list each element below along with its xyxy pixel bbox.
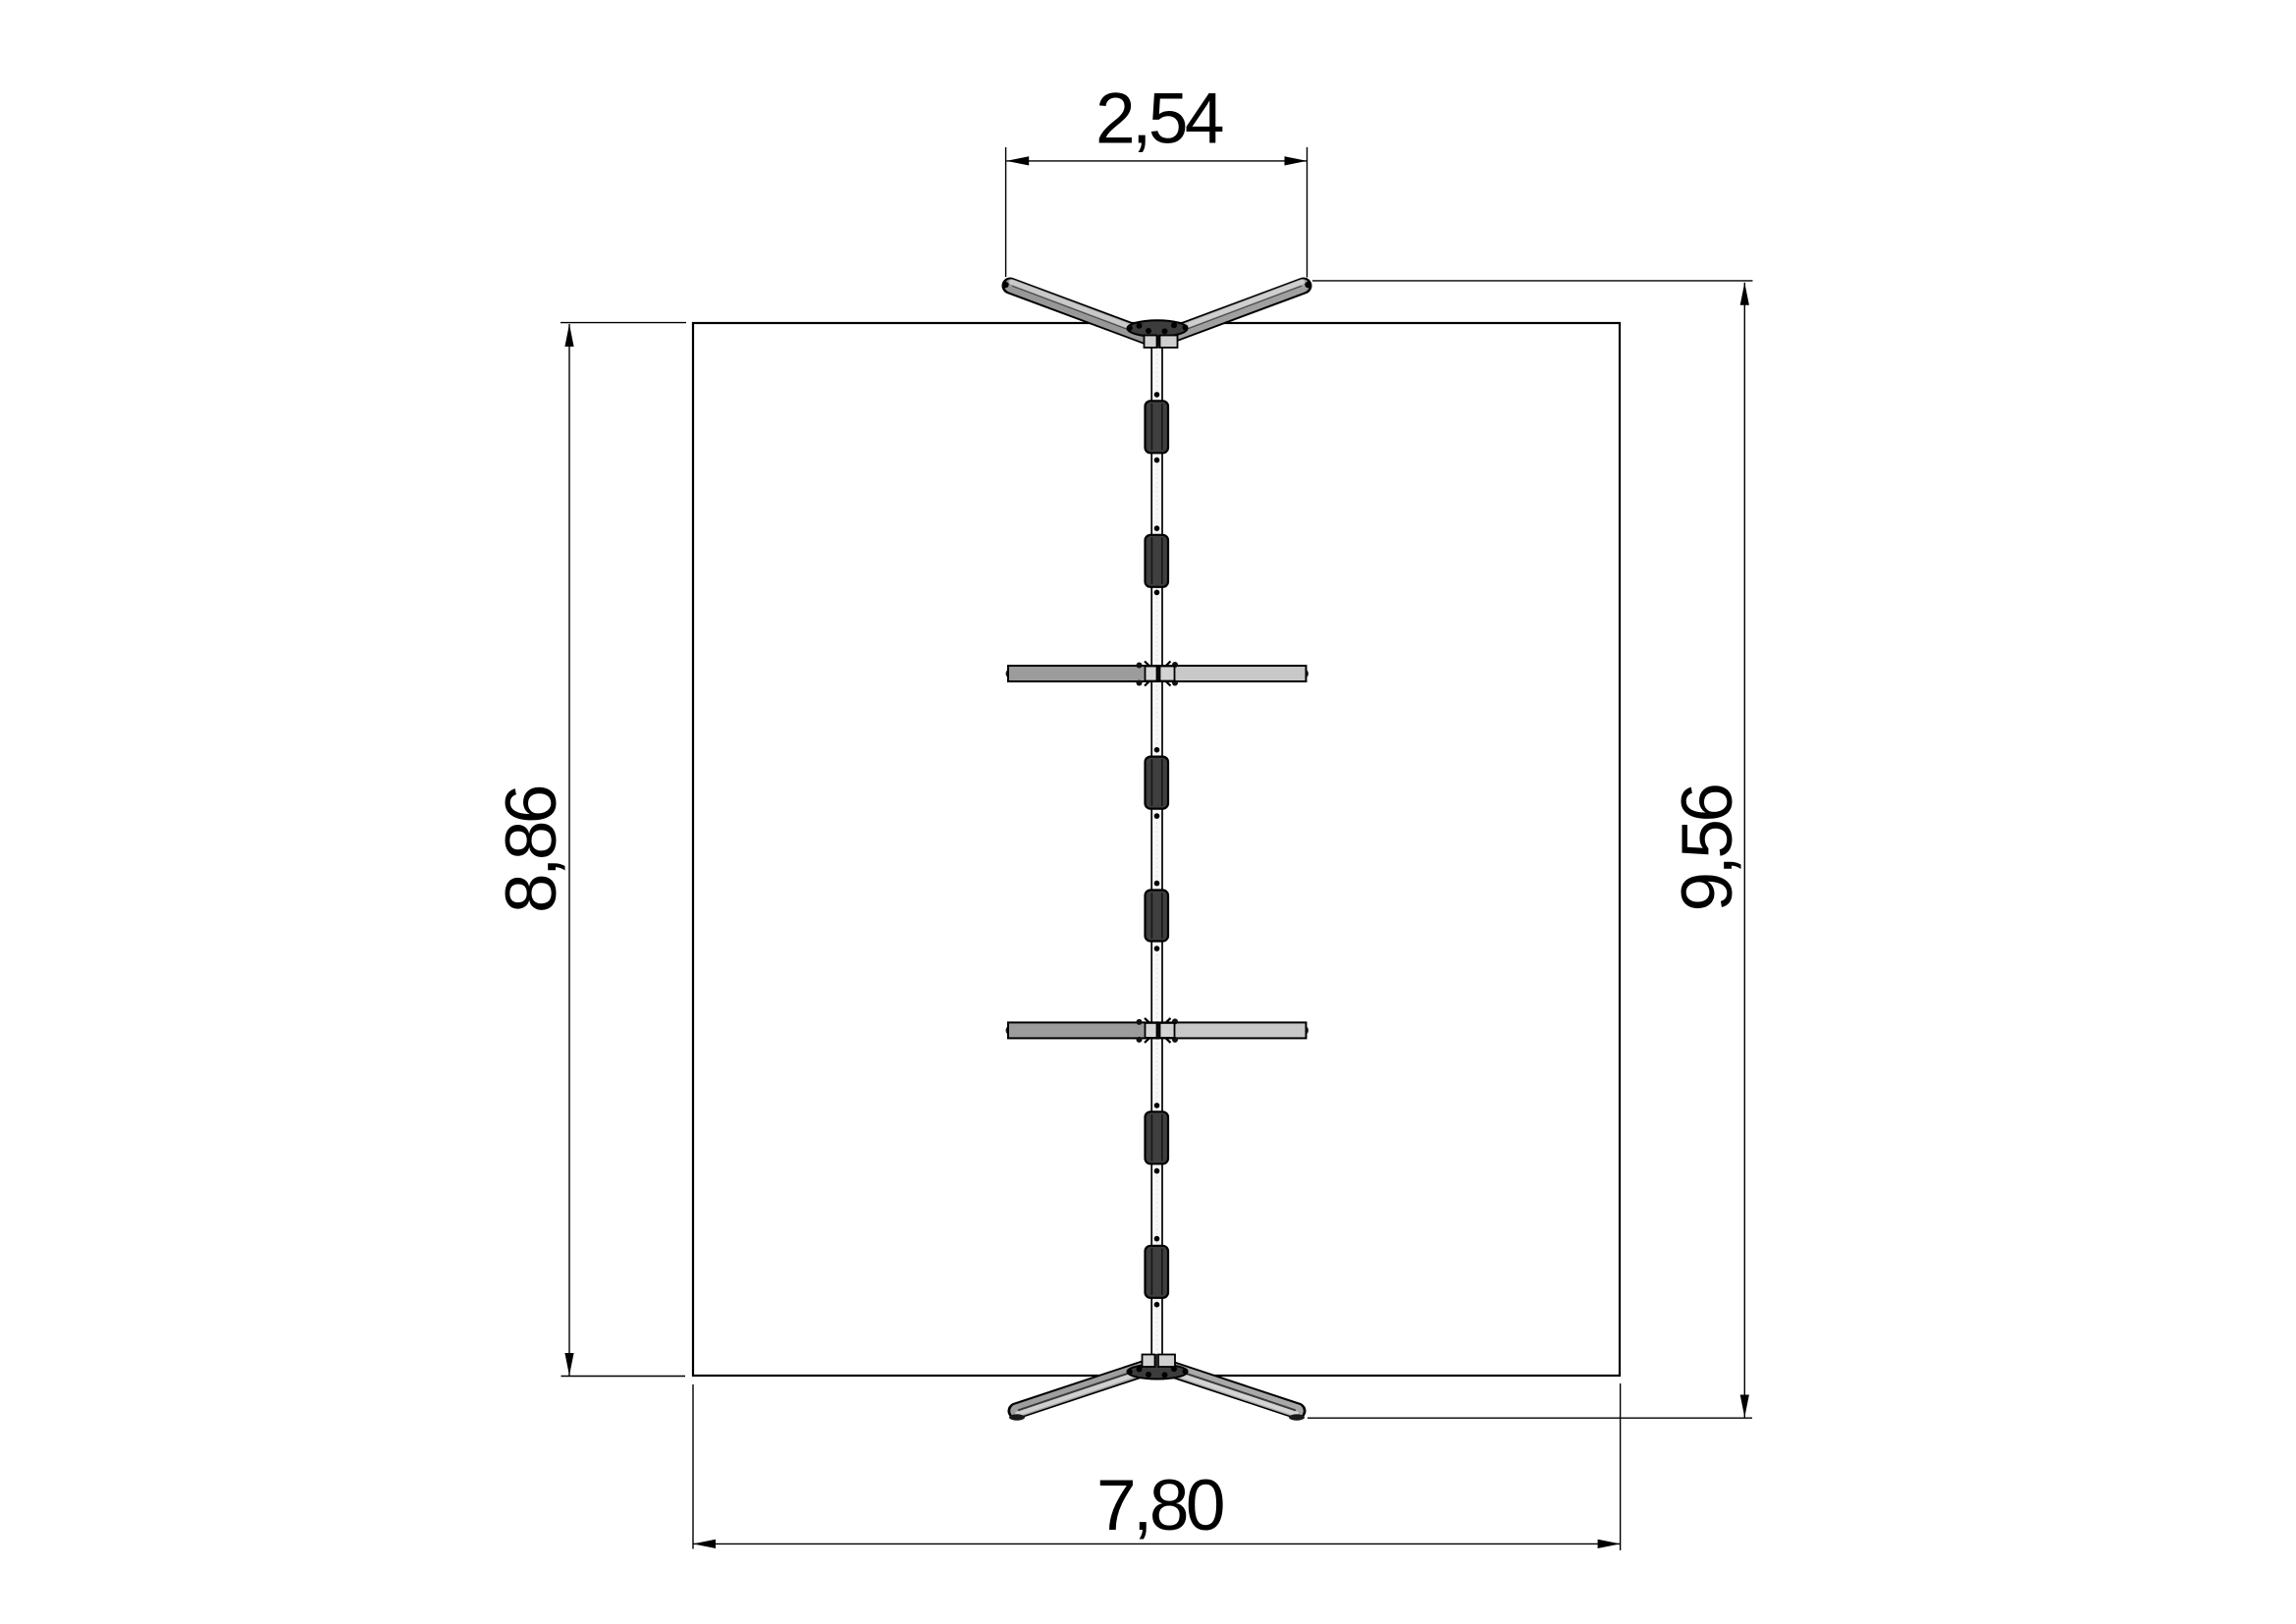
svg-text:9,56: 9,56 [1668,785,1747,912]
svg-text:7,80: 7,80 [1096,1466,1223,1545]
svg-text:8,86: 8,86 [492,786,571,913]
svg-text:2,54: 2,54 [1095,80,1223,159]
